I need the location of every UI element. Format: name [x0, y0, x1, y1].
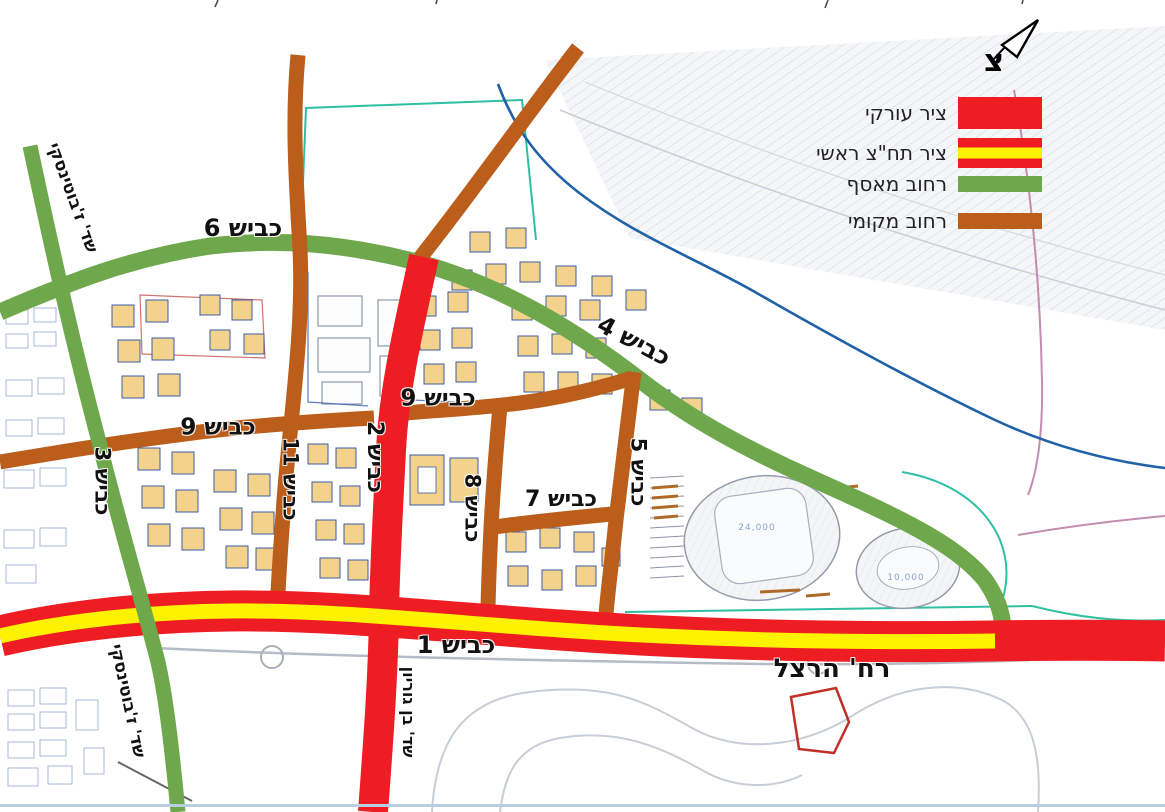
- building-footprint: [210, 330, 230, 350]
- building-footprint: [556, 266, 576, 286]
- building-footprint: [344, 524, 364, 544]
- building-footprint: [424, 364, 444, 384]
- building-footprint: [226, 546, 248, 568]
- legend-swatch-transit: [958, 138, 1042, 168]
- building-footprint: [348, 560, 368, 580]
- road-label-kvish9-west: כביש 9: [180, 417, 255, 440]
- street-label-ben-gurion: שד' בן גוריון: [400, 667, 416, 758]
- building-footprint: [542, 570, 562, 590]
- legend-item-transit: ציר תח"צ ראשי: [720, 138, 1042, 168]
- parking-hatch-line: [650, 526, 684, 528]
- parking-hatch-line: [650, 556, 684, 558]
- legend-swatch-arterial: [958, 97, 1042, 129]
- parking-hatch-line: [650, 476, 684, 478]
- building-footprint: [576, 566, 596, 586]
- building-footprint: [214, 470, 236, 492]
- building-footprint: [200, 295, 220, 315]
- parking-hatch-line: [650, 546, 684, 548]
- road-label-kvish3: כביש 3: [92, 447, 113, 516]
- building-footprint: [232, 300, 252, 320]
- building-footprint: [312, 482, 332, 502]
- road-label-kvish7: כביש 7: [525, 489, 597, 511]
- legend-item-local: רחוב מקומי: [720, 209, 1042, 233]
- building-courtyard: [418, 467, 436, 493]
- arena-capacity-text: 10,000: [887, 573, 925, 583]
- road-label-kvish9-east: כביש 9: [400, 388, 475, 411]
- building-footprint: [138, 448, 160, 470]
- building-footprint: [506, 228, 526, 248]
- road-kvish11-local: [277, 55, 301, 618]
- legend-label-arterial: ציר עורקי: [865, 101, 947, 125]
- road-label-kvish11: כביש 11: [280, 437, 301, 520]
- building-footprint: [508, 566, 528, 586]
- building-footprint: [520, 262, 540, 282]
- building-footprint: [176, 490, 198, 512]
- building-footprint: [244, 334, 264, 354]
- building-footprint: [252, 512, 274, 534]
- building-footprint: [248, 474, 270, 496]
- building-footprint: [506, 532, 526, 552]
- legend-item-collector: רחוב מאסף: [720, 172, 1042, 196]
- building-footprint: [122, 376, 144, 398]
- legend-swatch-collector: [958, 176, 1042, 192]
- building-footprint: [340, 486, 360, 506]
- road-label-kvish8: כביש 8: [462, 474, 483, 543]
- building-footprint: [592, 276, 612, 296]
- cutoff-text-marks: [215, 0, 1023, 8]
- red-parcel-outline: [791, 688, 849, 753]
- building-footprint: [148, 524, 170, 546]
- road-label-kvish5: כביש 5: [628, 438, 649, 507]
- building-footprint: [118, 340, 140, 362]
- background-parcels: [118, 646, 1039, 812]
- road-local-diagonal-north: [420, 48, 578, 258]
- building-footprint: [172, 452, 194, 474]
- building-footprint: [182, 528, 204, 550]
- building-footprint: [524, 372, 544, 392]
- road-label-kvish2: כביש 2: [363, 421, 385, 493]
- building-footprint: [448, 292, 468, 312]
- parking-hatch-line: [650, 576, 684, 578]
- building-footprint: [626, 290, 646, 310]
- building-footprint: [336, 448, 356, 468]
- building-footprint: [320, 558, 340, 578]
- north-letter: צ: [984, 43, 1004, 79]
- building-footprint: [518, 336, 538, 356]
- building-footprint: [420, 330, 440, 350]
- building-footprint: [580, 300, 600, 320]
- stadium-capacity-text: 24,000: [738, 523, 776, 533]
- building-footprint: [142, 486, 164, 508]
- road-kvish8-local: [488, 406, 500, 614]
- building-footprint: [574, 532, 594, 552]
- parking-hatch-line: [650, 536, 684, 538]
- building-footprint: [220, 508, 242, 530]
- building-footprint: [152, 338, 174, 360]
- building-footprint: [540, 528, 560, 548]
- building-footprint: [146, 300, 168, 322]
- parking-hatch-line: [650, 566, 684, 568]
- building-footprint: [316, 520, 336, 540]
- legend-item-arterial: ציר עורקי: [720, 97, 1042, 129]
- building-footprint: [452, 328, 472, 348]
- road-kvish7-local: [495, 514, 612, 527]
- building-footprint: [470, 232, 490, 252]
- stadium-complex: [650, 466, 966, 617]
- legend-label-local: רחוב מקומי: [848, 209, 947, 233]
- legend-label-collector: רחוב מאסף: [847, 172, 947, 196]
- street-label-herzl: רח' הרצל: [774, 656, 891, 682]
- legend-label-transit: ציר תח"צ ראשי: [816, 141, 947, 165]
- building-footprint: [112, 305, 134, 327]
- building-footprint: [158, 374, 180, 396]
- planning-map: ציר עורקי ציר תח"צ ראשי רחוב מאסף רחוב מ…: [0, 0, 1165, 812]
- building-footprint: [308, 444, 328, 464]
- road-label-kvish1: כביש 1: [417, 633, 496, 657]
- road-label-kvish6: כביש 6: [204, 216, 283, 240]
- bottom-edge-line: [0, 804, 1165, 807]
- legend-swatch-local: [958, 213, 1042, 229]
- building-footprint: [456, 362, 476, 382]
